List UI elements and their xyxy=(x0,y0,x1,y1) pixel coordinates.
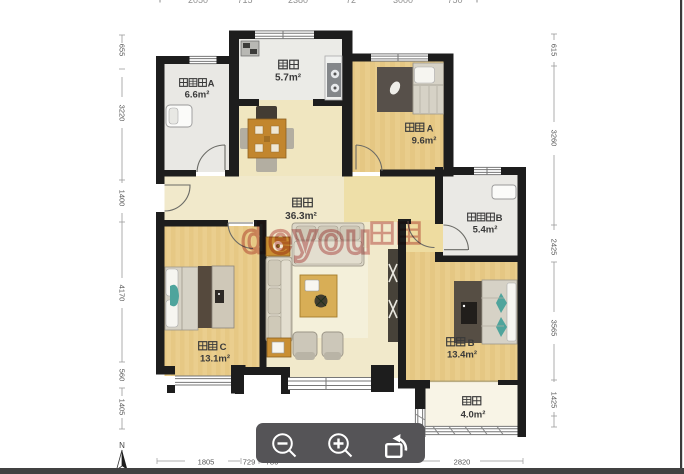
svg-text:750: 750 xyxy=(447,0,462,5)
svg-text:9.6m²: 9.6m² xyxy=(412,136,437,147)
svg-text:729: 729 xyxy=(243,458,256,467)
svg-text:3000: 3000 xyxy=(393,0,413,5)
svg-text:A: A xyxy=(208,79,215,90)
svg-text:72: 72 xyxy=(346,0,356,5)
svg-text:1405: 1405 xyxy=(118,399,127,416)
svg-text:C: C xyxy=(220,342,227,353)
svg-text:deyou: deyou xyxy=(241,215,372,262)
svg-text:5.7m²: 5.7m² xyxy=(275,73,302,84)
svg-text:715: 715 xyxy=(237,0,252,5)
svg-text:655: 655 xyxy=(118,44,127,57)
svg-text:2380: 2380 xyxy=(288,0,308,5)
svg-text:A: A xyxy=(427,124,434,135)
svg-text:1425: 1425 xyxy=(550,392,559,409)
svg-text:2050: 2050 xyxy=(188,0,208,5)
svg-text:4.0m²: 4.0m² xyxy=(461,410,486,421)
svg-text:3220: 3220 xyxy=(118,105,127,122)
svg-text:4170: 4170 xyxy=(118,285,127,302)
svg-text:B: B xyxy=(496,213,503,224)
svg-text:615: 615 xyxy=(550,44,559,57)
svg-text:1400: 1400 xyxy=(118,190,127,207)
svg-text:N: N xyxy=(119,441,125,450)
svg-text:13.4m²: 13.4m² xyxy=(447,350,477,361)
svg-text:5.4m²: 5.4m² xyxy=(473,225,498,236)
svg-text:3565: 3565 xyxy=(550,320,559,337)
svg-text:13.1m²: 13.1m² xyxy=(200,354,230,365)
svg-text:B: B xyxy=(468,338,475,349)
svg-text:6.6m²: 6.6m² xyxy=(185,90,210,101)
svg-text:1805: 1805 xyxy=(198,458,215,467)
svg-text:2425: 2425 xyxy=(550,239,559,256)
svg-text:2820: 2820 xyxy=(454,458,471,467)
svg-text:560: 560 xyxy=(118,369,127,382)
svg-text:3260: 3260 xyxy=(550,130,559,147)
